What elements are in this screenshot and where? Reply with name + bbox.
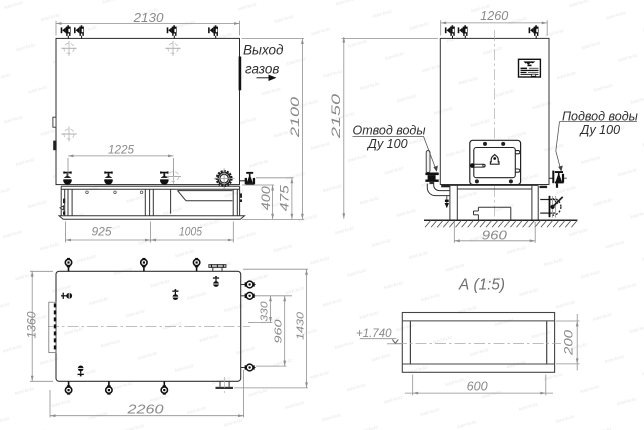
svg-text:330: 330 bbox=[259, 301, 271, 321]
svg-text:925: 925 bbox=[92, 225, 112, 239]
svg-text:960: 960 bbox=[273, 319, 285, 343]
svg-text:600: 600 bbox=[467, 379, 488, 393]
svg-text:+1.740: +1.740 bbox=[356, 328, 392, 340]
svg-text:960: 960 bbox=[482, 227, 508, 242]
svg-text:2260: 2260 bbox=[126, 402, 164, 417]
svg-text:А (1:5): А (1:5) bbox=[458, 277, 505, 294]
svg-text:2150: 2150 bbox=[329, 93, 343, 139]
svg-text:газов: газов bbox=[245, 62, 279, 77]
svg-text:Ду 100: Ду 100 bbox=[579, 123, 621, 137]
svg-text:475: 475 bbox=[280, 184, 292, 211]
svg-text:Выход: Выход bbox=[243, 43, 284, 58]
svg-text:1360: 1360 bbox=[26, 311, 38, 339]
svg-text:1260: 1260 bbox=[480, 9, 508, 23]
svg-text:Ду 100: Ду 100 bbox=[366, 137, 408, 151]
svg-text:200: 200 bbox=[564, 329, 576, 356]
svg-text:1430: 1430 bbox=[294, 312, 306, 340]
svg-text:400: 400 bbox=[261, 185, 273, 210]
svg-text:1005: 1005 bbox=[179, 225, 202, 239]
svg-text:2130: 2130 bbox=[132, 11, 163, 25]
svg-text:1225: 1225 bbox=[108, 142, 134, 156]
svg-text:2100: 2100 bbox=[288, 97, 302, 139]
svg-text:Отвод воды: Отвод воды bbox=[353, 124, 426, 138]
